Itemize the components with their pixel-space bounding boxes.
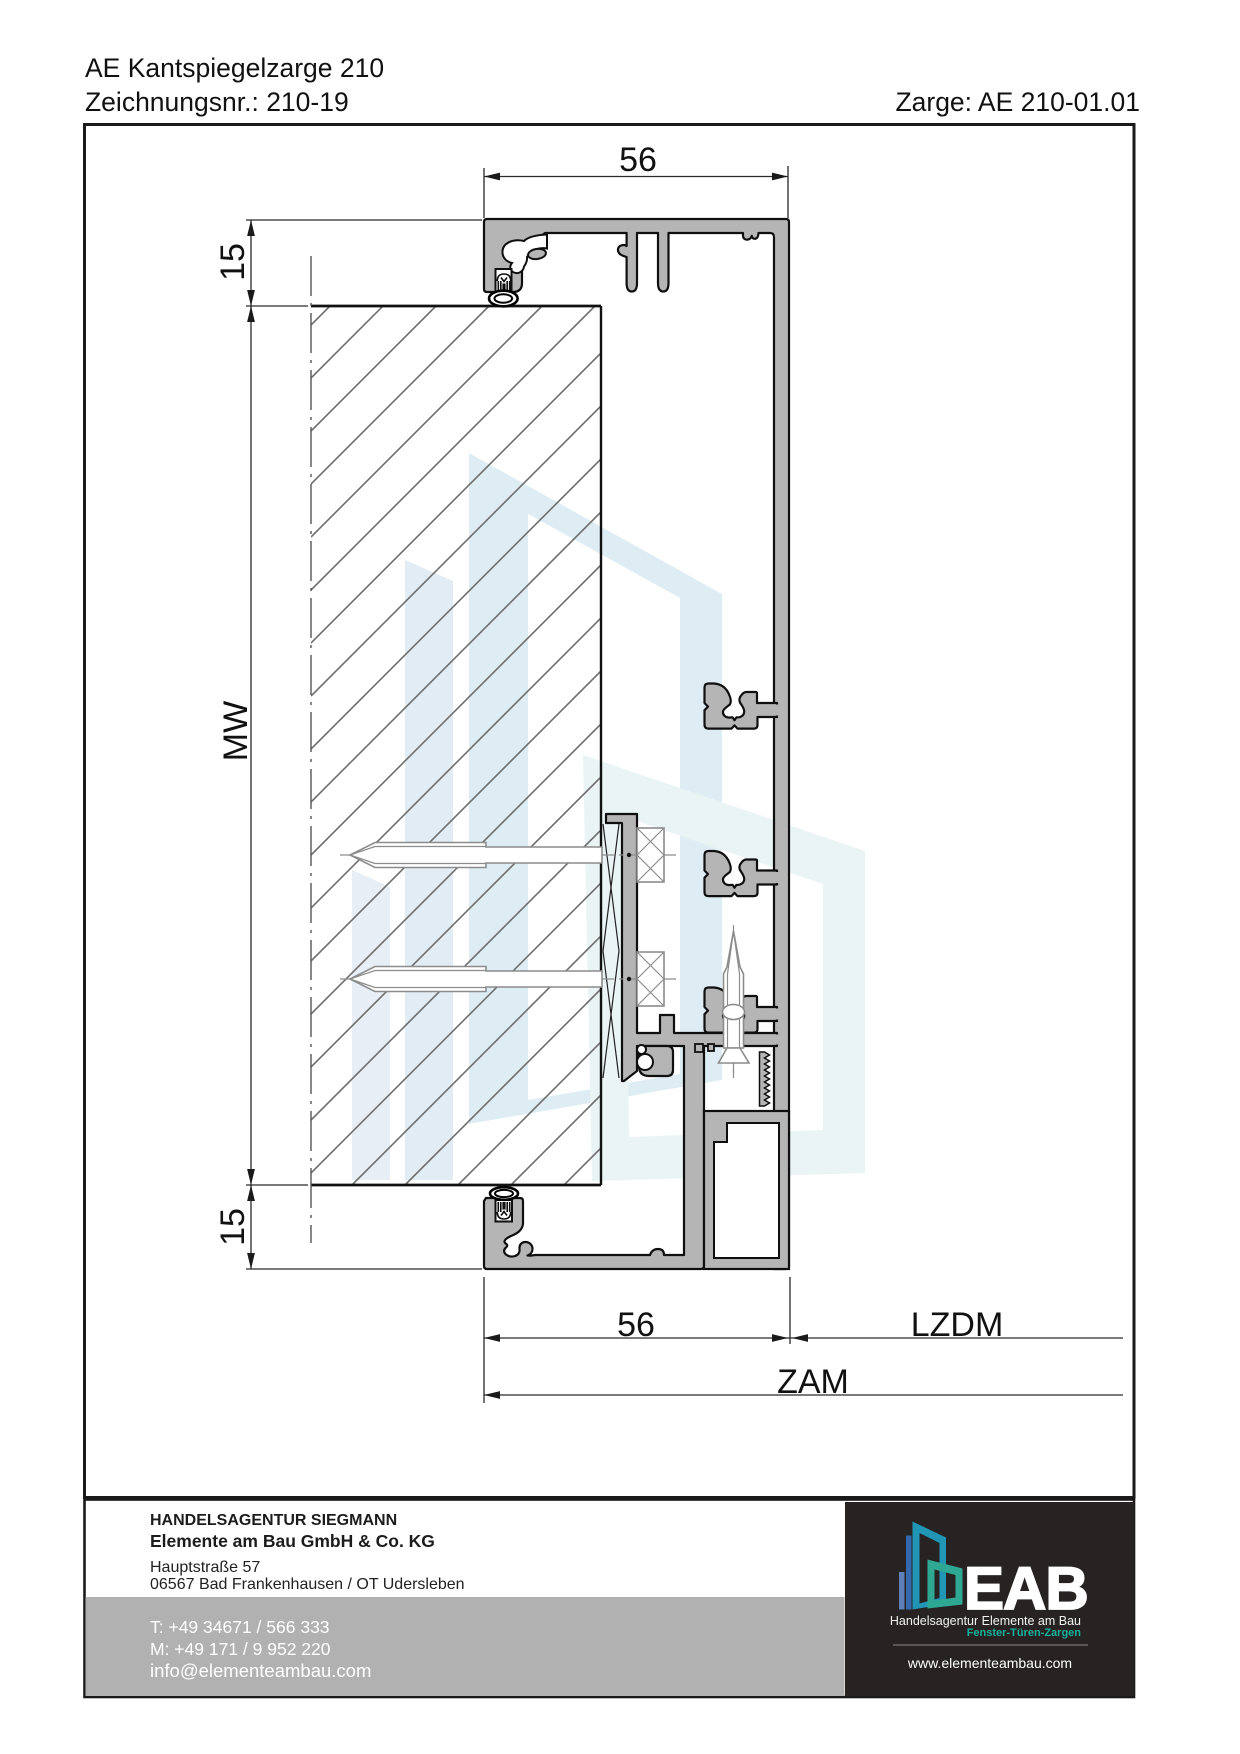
svg-text:Zeichnungsnr.: 210-19: Zeichnungsnr.: 210-19 (85, 87, 349, 117)
svg-text:HANDELSAGENTUR SIEGMANN: HANDELSAGENTUR SIEGMANN (150, 1512, 397, 1529)
svg-text:AE Kantspiegelzarge 210: AE Kantspiegelzarge 210 (85, 53, 384, 83)
svg-text:15: 15 (214, 1208, 252, 1246)
svg-text:T: +49 34671 / 566 333: T: +49 34671 / 566 333 (150, 1617, 330, 1637)
svg-text:EAB: EAB (964, 1555, 1088, 1622)
svg-text:MW: MW (217, 701, 255, 761)
svg-text:06567 Bad Frankenhausen / OT U: 06567 Bad Frankenhausen / OT Udersleben (150, 1576, 465, 1593)
svg-text:15: 15 (214, 243, 252, 281)
svg-text:56: 56 (619, 141, 657, 179)
svg-text:www.elementeambau.com: www.elementeambau.com (907, 1655, 1072, 1671)
svg-text:LZDM: LZDM (911, 1306, 1004, 1344)
svg-text:info@elementeambau.com: info@elementeambau.com (150, 1660, 371, 1681)
svg-text:Elemente am Bau GmbH & Co. KG: Elemente am Bau GmbH & Co. KG (150, 1531, 435, 1551)
svg-text:Fenster-Türen-Zargen: Fenster-Türen-Zargen (967, 1627, 1082, 1639)
svg-text:M: +49 171 / 9 952 220: M: +49 171 / 9 952 220 (150, 1639, 331, 1659)
svg-text:Handelsagentur Elemente am Bau: Handelsagentur Elemente am Bau (890, 1614, 1081, 1628)
svg-text:ZAM: ZAM (777, 1363, 849, 1401)
svg-text:Zarge: AE 210-01.01: Zarge: AE 210-01.01 (895, 87, 1140, 117)
svg-text:Hauptstraße 57: Hauptstraße 57 (150, 1559, 260, 1576)
svg-text:56: 56 (617, 1306, 655, 1344)
